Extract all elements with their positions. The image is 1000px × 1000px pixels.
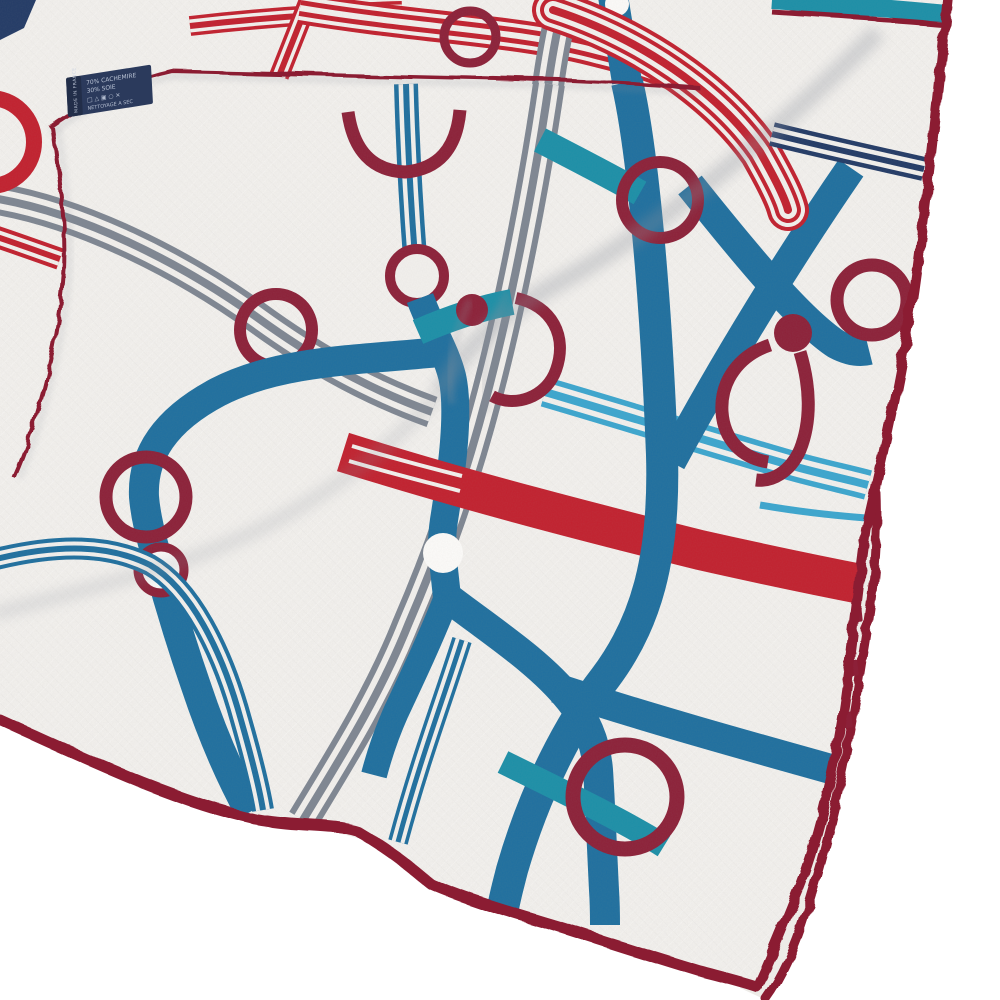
- product-photo: MADE IN FRANCE 70% CACHEMIRE 30% SOIE □ …: [0, 0, 1000, 1000]
- scarf-photo-canvas: MADE IN FRANCE 70% CACHEMIRE 30% SOIE □ …: [0, 0, 1000, 1000]
